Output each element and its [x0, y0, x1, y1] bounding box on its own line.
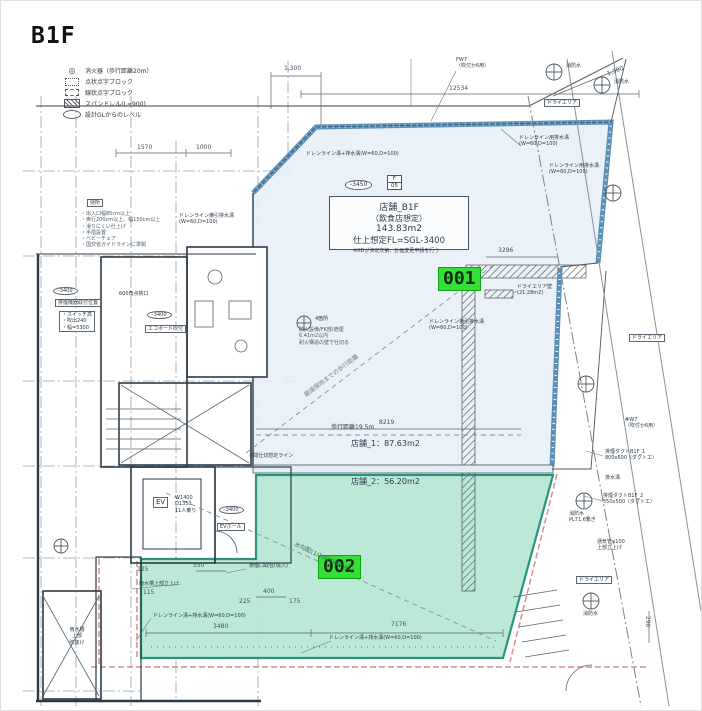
dim-225: 225 — [239, 598, 250, 606]
legend-label: 設計GLからのレベル — [85, 110, 141, 119]
toilet-note-body: ・出入口幅85cm以上 ・奥行200cm以上、幅150cm以上 ・滑りにくい仕上… — [81, 211, 160, 249]
tenant-division-band — [253, 465, 553, 473]
room-name: 店舗_B1F — [332, 200, 466, 213]
drain-label-6: ドレンライン溝+排水溝(W=60,D=100) — [153, 613, 246, 619]
legend-label: 線状点字ブロック — [85, 88, 133, 97]
level-3450-tag: -3450 — [345, 180, 372, 190]
fire-count-label: 4箇所 — [315, 316, 328, 322]
eco-board-label: エコボード吹付 — [145, 325, 186, 333]
dim-550: 550 — [193, 562, 204, 570]
room-use: （飲食店想定） — [332, 213, 466, 224]
dim-1000: 1000 — [196, 144, 211, 152]
dry-area-label-1: ドライエリア — [629, 334, 665, 342]
legend-row: 点状点字ブロック — [59, 76, 152, 87]
room-001-label-box: 店舗_B1F （飲食店想定） 143.83m2 仕上想定FL=SGL-3400 — [329, 196, 469, 250]
fire-water-bottom: 消防水 — [583, 611, 598, 617]
dim-1570: 1570 — [137, 144, 152, 152]
rain-tank-up-label: 雨水槽上部立上げ — [139, 581, 179, 587]
dim-8219: 8219 — [379, 419, 394, 427]
dim-3480: 3480 — [213, 623, 228, 631]
legend-label: スパンドレル(L=900) — [85, 99, 146, 108]
door-tag: F 05 — [387, 175, 402, 190]
unit-001-badge[interactable]: 001 — [438, 267, 481, 291]
smoke-intake-label: 排煙口取合(吸入) — [249, 563, 288, 569]
legend-row: スパンドレル(L=900) — [59, 98, 152, 109]
ev-hall-label: EVホール — [217, 523, 245, 531]
room-fl: 仕上想定FL=SGL-3400 — [332, 234, 466, 246]
page-title: B1F — [31, 23, 76, 49]
fire-extinguisher-icon: ◎ — [69, 67, 76, 75]
mech-note-title: 排煙機器取付位置 — [55, 299, 101, 307]
fire-note-label: 防火設備/FK部/遮煙 6.41m2以内 耐火構造の壁で仕切る — [299, 327, 349, 346]
drain-label-7: ドレンライン溝+排水溝(W=60,D=100) — [329, 635, 422, 641]
rain-tank-void-label: 雨水槽 上部 吹抜け — [57, 627, 97, 646]
vent-pipe-label: 通気管φ100 上部立上げ — [597, 539, 625, 552]
dim-115: 115 — [143, 589, 154, 597]
line-braille-block-icon — [65, 89, 79, 96]
elevator-spec-label: W1400 D1350 11人乗り — [175, 495, 196, 514]
fire-water2-label: 消防水 PL71.6繋ぎ — [569, 511, 596, 524]
level-3400-tag-3: -3400 — [147, 311, 172, 319]
legend-row: 設計GLからのレベル — [59, 109, 152, 120]
dim-175: 175 — [289, 598, 300, 606]
fire-water-top-2: 消防水 — [614, 79, 629, 85]
level-oval-icon — [63, 110, 81, 119]
legend-label: 消火器（歩行距離20m） — [85, 66, 152, 75]
room1-area-label: 店舗_1：87.63m2 — [351, 439, 420, 449]
dry-area-wall-label: ドライエリア壁 (21.28m2) — [517, 284, 552, 297]
w7-label: #W7 （吹付か6用） — [625, 417, 658, 430]
fw7-label: FW7 （吹付か6用） — [456, 57, 489, 70]
drain-label-3: ドレンライン用排水溝 (W=60,D=100) — [519, 135, 569, 148]
drain-label-2: ドレンライン横引排水溝 (W=60,D=100) — [179, 213, 234, 226]
toilet-note-title: 便所 — [87, 199, 103, 207]
dry-area-label-2: ドライエリア — [576, 576, 612, 584]
floorplan-b1f: B1F ◎ 消火器（歩行距離20m） 点状点字ブロック 線状点字ブロック スパン… — [0, 0, 702, 711]
dim-290: 290 — [644, 616, 652, 627]
level-3400-tag-2: -3400 — [53, 287, 78, 295]
inspection-hatch-label: 600角点検口 — [119, 291, 149, 297]
mech-note-body: ・スイッチ高 ・吹出240 ・幅=5300 — [59, 311, 95, 332]
level-3400-tag-1: -3400 — [219, 506, 244, 514]
partition-line-label: ※間仕切想定ライン — [249, 453, 293, 459]
room-note: ※KDが決定次第、計画変更申請を行う — [353, 248, 439, 254]
smoke-duct2-label: 排煙ダクトB1F_2 550x500（ダクト工） — [603, 493, 655, 506]
spandrel-hatch-icon — [64, 99, 80, 108]
ditch-label: 排水溝 — [605, 475, 620, 481]
walk-distance-label: 歩行距離19.5m — [331, 424, 374, 432]
drain-label-4: ドレンライン用排水溝 (W=60,D=100) — [549, 163, 599, 176]
legend: ◎ 消火器（歩行距離20m） 点状点字ブロック 線状点字ブロック スパンドレル(… — [59, 65, 152, 120]
dim-400: 400 — [263, 588, 274, 596]
dim-3296: 3296 — [498, 247, 513, 255]
dim-12534: 12534 — [449, 85, 468, 93]
fire-water-top-1: 消防水 — [566, 63, 581, 69]
room2-area-label: 店舗_2：56.20m2 — [351, 477, 420, 487]
legend-label: 点状点字ブロック — [85, 77, 133, 86]
legend-row: ◎ 消火器（歩行距離20m） — [59, 65, 152, 76]
dim-7176: 7176 — [391, 621, 406, 629]
smoke-duct1-label: 排煙ダクトB1F_1 800x600（ダクト工） — [605, 449, 657, 462]
drain-label-5: ドレンライン横引排水溝 (W=60,D=100) — [429, 319, 484, 332]
dot-braille-block-icon — [65, 78, 79, 86]
dry-area-label-3: ドライエリア — [544, 99, 580, 107]
dim-125: 125 — [137, 566, 148, 574]
door-tag-top: F — [388, 176, 401, 183]
legend-row: 線状点字ブロック — [59, 87, 152, 98]
room-area: 143.83m2 — [332, 224, 466, 234]
door-tag-bottom: 05 — [388, 183, 401, 189]
elevator-label: EV — [153, 497, 168, 508]
dim-1300: 1,300 — [284, 65, 301, 73]
drain-label-1: ドレンライン溝+排水溝(W=60,D=100) — [306, 151, 399, 157]
